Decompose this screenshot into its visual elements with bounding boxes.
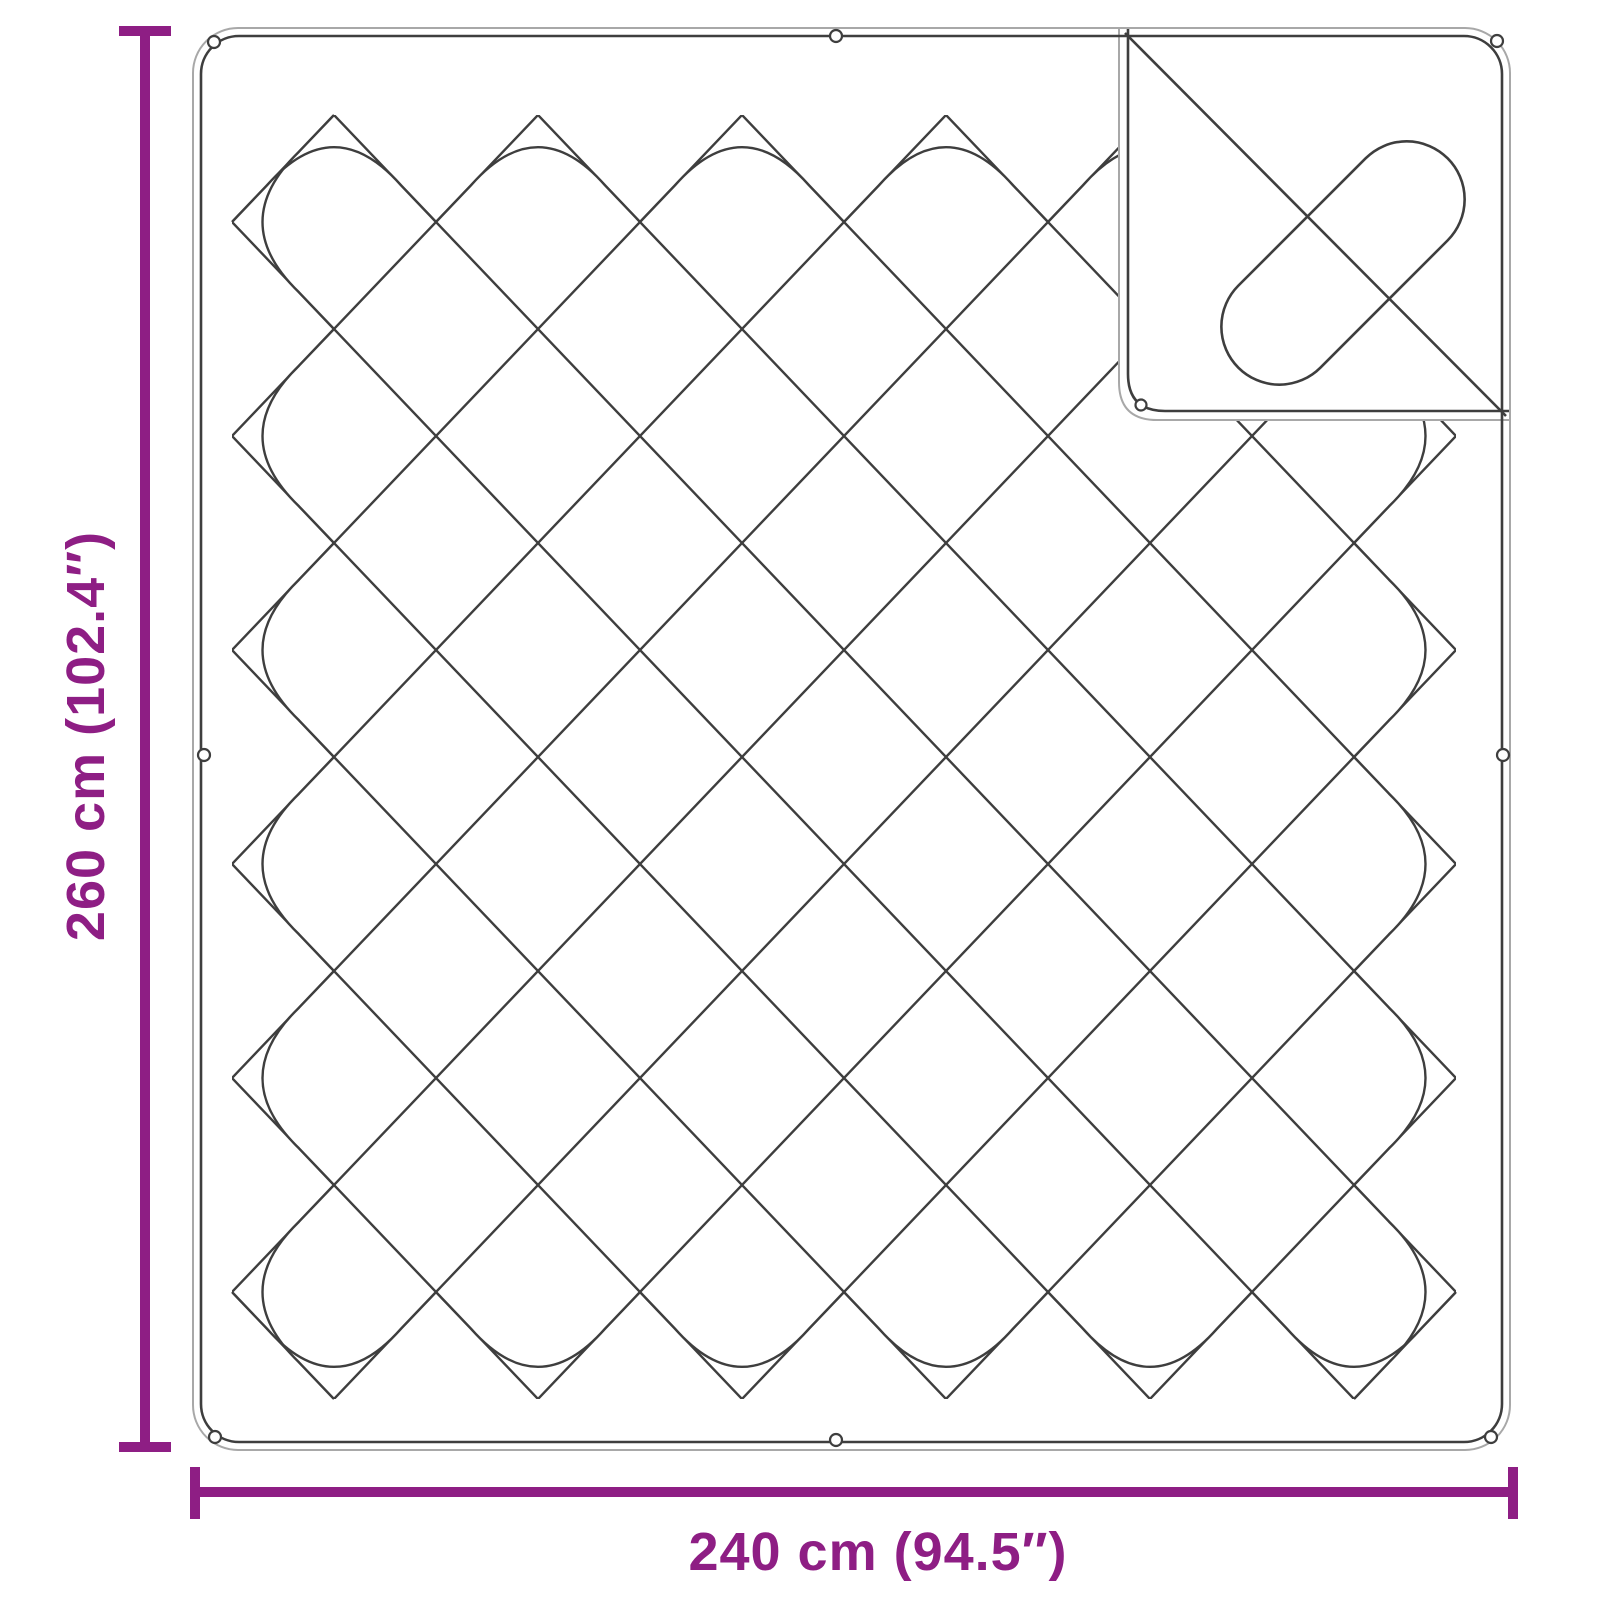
edge-loop <box>198 749 210 761</box>
folded-corner-flap <box>1119 28 1510 420</box>
corner-loop <box>209 1431 221 1443</box>
dimension-end-tick <box>119 1442 171 1452</box>
corner-loop <box>1491 35 1503 47</box>
width-label: 240 cm (94.5″) <box>578 1517 1178 1587</box>
corner-loop <box>1136 400 1147 411</box>
dimension-line <box>140 26 150 1448</box>
dimension-line <box>195 1487 1513 1497</box>
dimension-end-tick <box>1508 1467 1518 1519</box>
edge-loop <box>830 1434 842 1446</box>
height-label: 260 cm (102.4″) <box>51 436 121 1036</box>
edge-loop <box>1497 749 1509 761</box>
dimension-diagram: 260 cm (102.4″) 240 cm (94.5″) <box>0 0 1600 1600</box>
corner-loop <box>208 36 220 48</box>
width-dimension-line <box>190 1467 1518 1519</box>
height-dimension-line <box>119 26 171 1452</box>
edge-loop <box>830 30 842 42</box>
diagram-canvas <box>0 0 1600 1600</box>
corner-loop <box>1485 1431 1497 1443</box>
